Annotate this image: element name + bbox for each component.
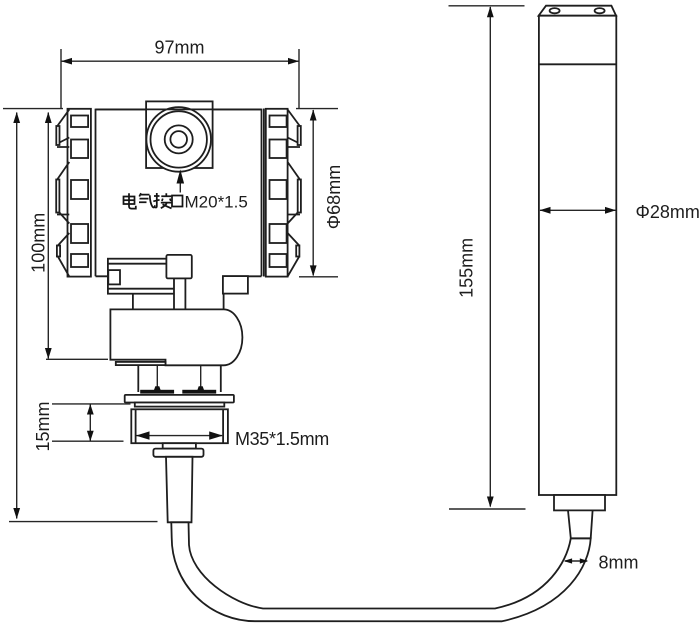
svg-text:15mm: 15mm xyxy=(33,401,53,451)
svg-text:M20*1.5: M20*1.5 xyxy=(185,193,248,212)
svg-text:8mm: 8mm xyxy=(599,553,639,573)
svg-text:M35*1.5mm: M35*1.5mm xyxy=(235,429,329,449)
svg-text:97mm: 97mm xyxy=(154,38,204,58)
svg-text:155mm: 155mm xyxy=(457,238,477,298)
svg-text:100mm: 100mm xyxy=(29,213,49,273)
svg-text:Φ28mm: Φ28mm xyxy=(636,202,700,222)
svg-text:Φ68mm: Φ68mm xyxy=(324,165,344,229)
